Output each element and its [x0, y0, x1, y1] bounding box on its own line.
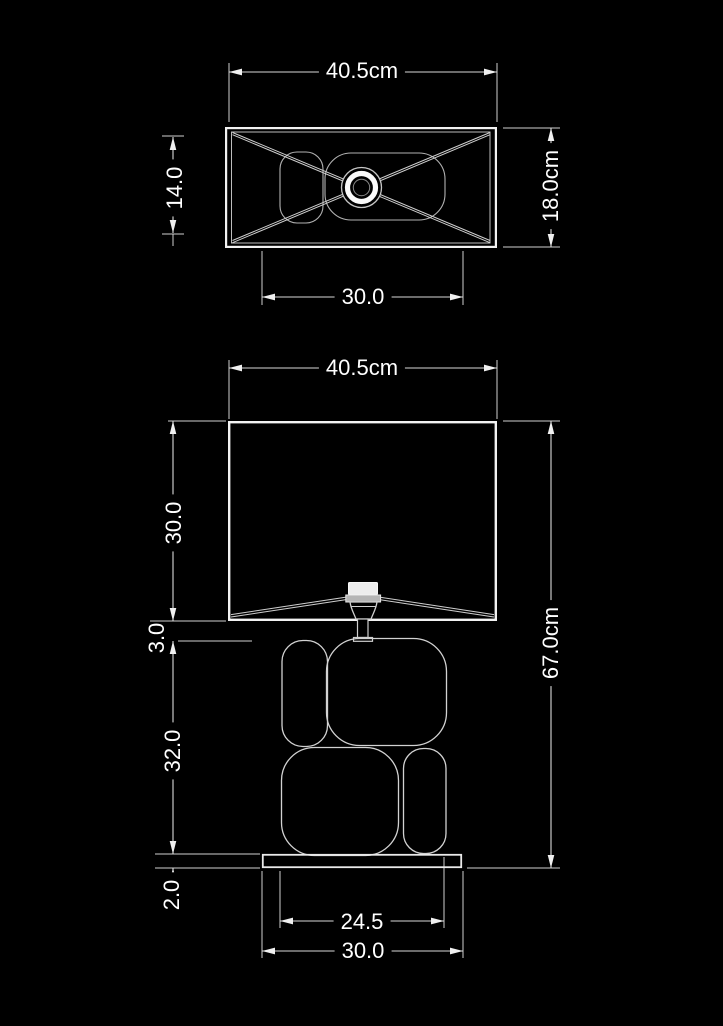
socket-cap	[349, 583, 378, 595]
dim-label-top-shade-depth: 18.0cm	[538, 143, 564, 229]
dim-label-front-base-width: 30.0	[335, 938, 392, 964]
body-pebble-top-left	[282, 641, 328, 747]
base-plinth	[263, 855, 461, 867]
body-pebble-bottom-left	[282, 748, 399, 856]
body-pebble-top-right	[327, 639, 447, 746]
front-view-extension-lines	[150, 360, 560, 958]
socket-taper	[350, 602, 378, 619]
lamp-stem	[358, 619, 369, 638]
dim-label-front-base-height: 2.0	[159, 873, 185, 918]
spider-arm-right	[379, 600, 495, 618]
drawing-canvas: 40.5cm 14.0 18.0cm 30.0 40.5cm 30.0 3.0 …	[0, 0, 723, 1026]
dim-label-top-shade-width: 40.5cm	[319, 58, 405, 84]
socket-band	[346, 595, 381, 602]
bulb-socket	[346, 583, 381, 642]
dim-label-front-total-height: 67.0cm	[538, 600, 564, 686]
top-view-drawing	[162, 63, 560, 305]
dim-label-top-body-width: 30.0	[335, 284, 392, 310]
dim-label-front-shade-height: 30.0	[161, 495, 187, 552]
dim-label-front-gap: 3.0	[144, 621, 170, 656]
lamp-technical-drawing	[0, 0, 723, 1026]
front-view-drawing	[150, 360, 560, 958]
dim-label-top-inner-depth: 14.0	[162, 160, 188, 217]
spider-arm-left	[231, 600, 347, 618]
body-pebble-bottom-right	[404, 749, 447, 854]
dim-label-front-body-width: 24.5	[334, 909, 391, 935]
lamp-body	[282, 639, 447, 856]
dim-label-front-body-height: 32.0	[160, 723, 186, 780]
dim-label-front-shade-width: 40.5cm	[319, 355, 405, 381]
socket-ring-icon	[342, 168, 382, 208]
